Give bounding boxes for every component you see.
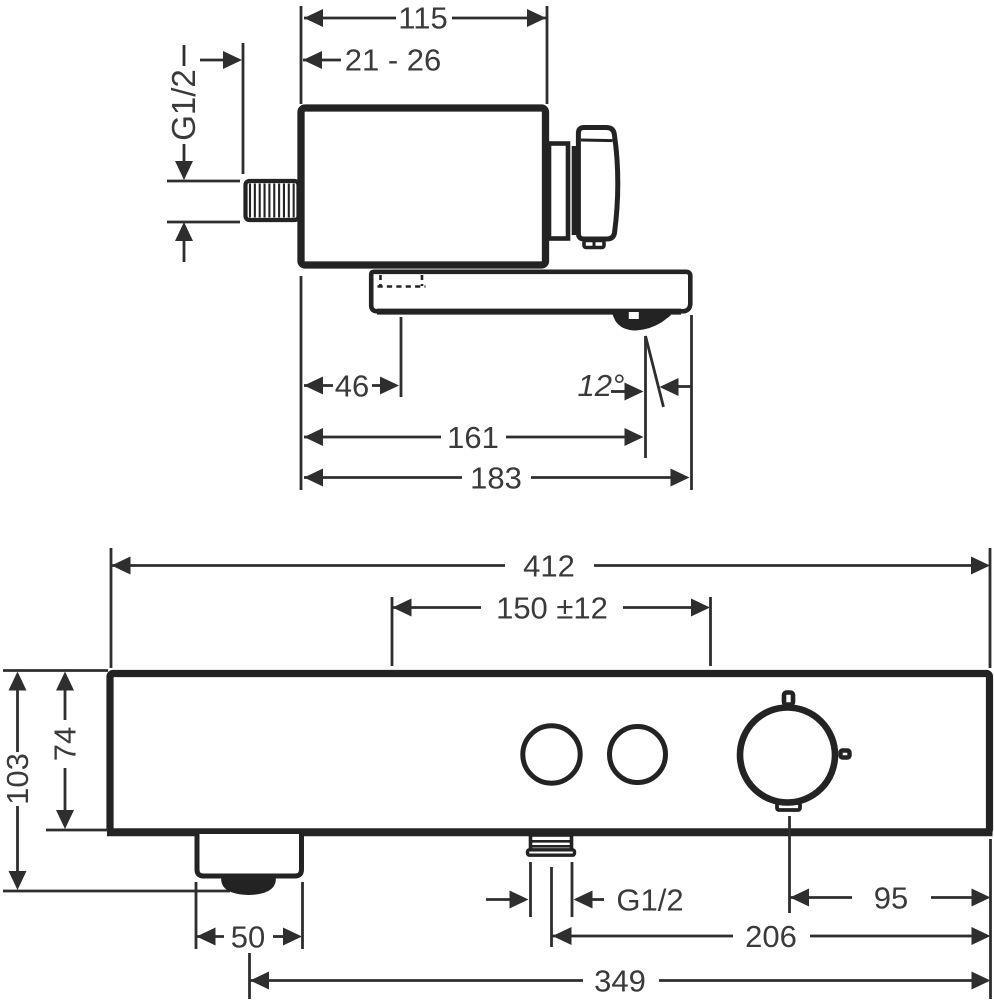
svg-text:349: 349 <box>594 964 646 999</box>
svg-text:412: 412 <box>523 549 575 584</box>
svg-text:183: 183 <box>470 461 522 496</box>
svg-text:12°: 12° <box>578 368 625 403</box>
svg-text:G1/2: G1/2 <box>616 883 683 918</box>
svg-text:50: 50 <box>231 920 265 955</box>
svg-text:95: 95 <box>874 881 908 916</box>
svg-text:21 - 26: 21 - 26 <box>345 43 442 78</box>
svg-text:150 ±12: 150 ±12 <box>496 591 608 626</box>
svg-text:115: 115 <box>398 1 447 36</box>
svg-text:G1/2: G1/2 <box>165 69 202 141</box>
svg-text:161: 161 <box>447 420 499 455</box>
svg-text:206: 206 <box>745 919 797 954</box>
svg-text:103: 103 <box>0 753 35 805</box>
svg-text:46: 46 <box>335 369 369 404</box>
svg-text:74: 74 <box>48 727 83 761</box>
